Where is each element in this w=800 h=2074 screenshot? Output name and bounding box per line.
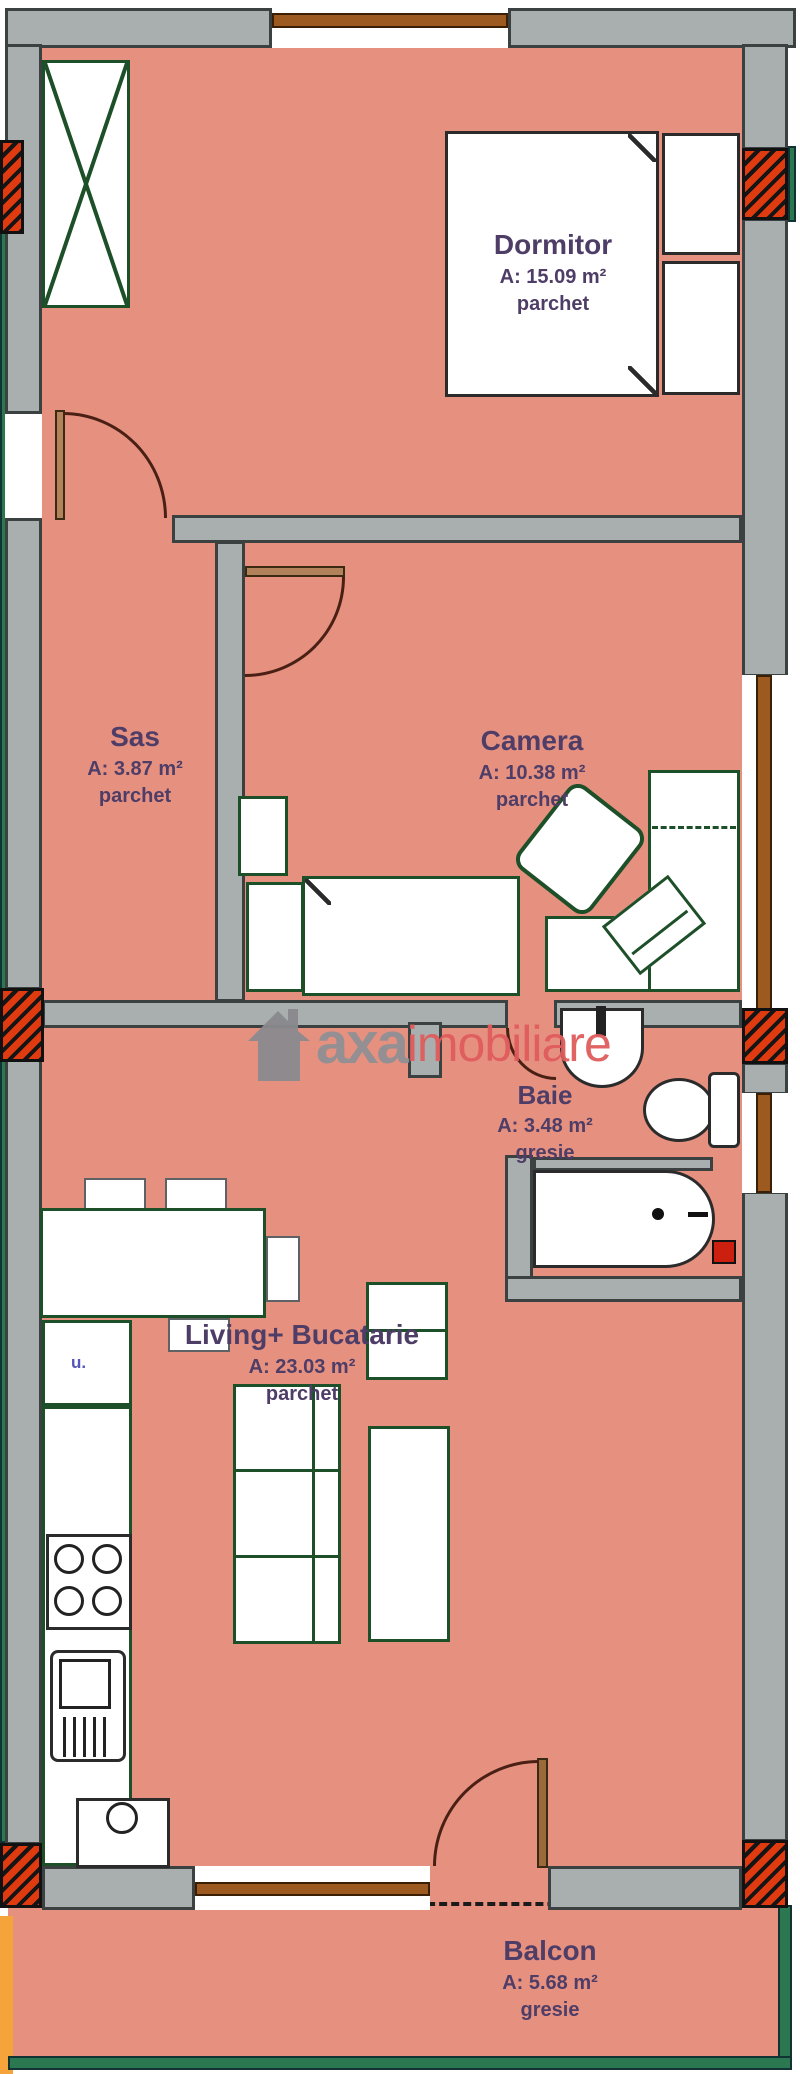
baie-valve: [712, 1240, 736, 1264]
dining-chair-right: [266, 1236, 300, 1302]
kitchen-sink-basin: [59, 1659, 111, 1709]
sofa: [233, 1384, 341, 1644]
wall-sas-camera-divider: [215, 541, 245, 1002]
hatch-left-bottom: [0, 1843, 42, 1908]
stove-burner-4: [92, 1586, 122, 1616]
wall-bottom-left: [42, 1866, 195, 1910]
dining-chair-top-1: [84, 1178, 146, 1212]
hatch-left-mid: [0, 988, 44, 1062]
window-top-frame: [272, 13, 508, 28]
hatch-right-top: [742, 148, 788, 220]
washing-machine-label: u.: [71, 1353, 86, 1373]
kitchen-sink-drain-lines: [63, 1717, 111, 1757]
camera-floor: parchet: [479, 787, 586, 814]
living-area: A: 23.03 m²: [185, 1354, 419, 1381]
dining-chair-top-2: [165, 1178, 227, 1212]
coffee-table: [368, 1426, 450, 1642]
window-baie-frame: [756, 1093, 772, 1193]
shaft-box: [42, 60, 130, 308]
stove-burner-3: [54, 1586, 84, 1616]
sas-floor: parchet: [87, 783, 183, 810]
wall-right-lower: [742, 1191, 788, 1842]
baie-bathtub-drain: [652, 1208, 664, 1220]
floor-plan: u. Dormitor A: 15.09 m² parchet Sas A: 3…: [0, 0, 800, 2074]
exterior-green-strip-right-top: [788, 146, 796, 222]
wall-left-lower: [5, 1058, 42, 1845]
window-top: [272, 8, 508, 48]
wall-bottom-right: [548, 1866, 742, 1910]
dormitor-name: Dormitor: [494, 226, 612, 264]
camera-door-leaf: [245, 566, 345, 577]
stove-burner-1: [54, 1544, 84, 1574]
label-camera: Camera A: 10.38 m² parchet: [479, 722, 586, 814]
camera-bed: [302, 876, 520, 996]
baie-floor: gresie: [497, 1140, 593, 1167]
baie-bathtub-tap: [688, 1212, 708, 1217]
dormitor-headboard-top: [662, 133, 740, 255]
label-sas: Sas A: 3.87 m² parchet: [87, 718, 183, 810]
window-bottom: [195, 1866, 430, 1910]
stove-burner-2: [92, 1544, 122, 1574]
hatch-left-top: [0, 140, 24, 234]
baie-toilet-bowl: [643, 1078, 715, 1142]
window-camera-frame: [756, 675, 772, 1010]
wall-left-middle: [5, 518, 42, 990]
entrance-opening: [5, 414, 42, 518]
dining-table: [40, 1208, 266, 1318]
watermark-brand: axa: [316, 1015, 407, 1073]
kitchen-sink-unit: [50, 1650, 126, 1762]
dormitor-bed-fold-bottom: [628, 366, 656, 394]
wall-tub-bottom: [505, 1276, 742, 1302]
wall-top-right: [508, 8, 796, 48]
watermark-brand-suffix: imobiliare: [407, 1019, 611, 1069]
watermark-house-icon: [244, 999, 314, 1089]
dormitor-area: A: 15.09 m²: [494, 264, 612, 291]
balcony-bottom-border: [8, 2056, 792, 2070]
sas-area: A: 3.87 m²: [87, 756, 183, 783]
balcony-right-border: [778, 1905, 792, 2068]
balcony-left-orange-edge: [0, 1916, 13, 2074]
window-camera-right: [742, 675, 788, 1010]
shaft-x-icon: [45, 63, 127, 305]
baie-area: A: 3.48 m²: [497, 1113, 593, 1140]
balcon-name: Balcon: [502, 1932, 598, 1970]
camera-pillow: [246, 882, 304, 992]
label-baie: Baie A: 3.48 m² gresie: [497, 1078, 593, 1167]
kitchen-counter: [42, 1406, 132, 1866]
camera-nightstand: [238, 796, 288, 876]
balcon-area: A: 5.68 m²: [502, 1970, 598, 1997]
label-dormitor: Dormitor A: 15.09 m² parchet: [494, 226, 612, 318]
hatch-right-mid: [742, 1008, 788, 1064]
living-floor: parchet: [185, 1381, 419, 1408]
balcon-floor: gresie: [502, 1997, 598, 2024]
label-balcon: Balcon A: 5.68 m² gresie: [502, 1932, 598, 2024]
wall-top-left: [5, 8, 272, 48]
dormitor-floor: parchet: [494, 291, 612, 318]
living-name: Living+ Bucatarie: [185, 1316, 419, 1354]
watermark: axaimobiliare: [244, 998, 611, 1090]
baie-toilet-tank: [708, 1072, 740, 1148]
wall-right-upper: [742, 218, 788, 677]
dormitor-headboard-bottom: [662, 261, 740, 395]
dormitor-bed-fold-top: [628, 134, 656, 162]
window-baie-right: [742, 1093, 788, 1193]
label-living: Living+ Bucatarie A: 23.03 m² parchet: [185, 1316, 419, 1408]
camera-name: Camera: [479, 722, 586, 760]
camera-desk-drawer-dash: [652, 826, 736, 829]
wall-dormitor-divider: [172, 515, 742, 543]
wall-right-mid: [742, 1062, 788, 1095]
wall-right-top: [742, 44, 788, 150]
balcony-floor: [8, 1908, 790, 2058]
camera-area: A: 10.38 m²: [479, 760, 586, 787]
washing-machine: u.: [42, 1320, 132, 1406]
camera-bed-fold: [305, 879, 331, 905]
hatch-right-bottom: [742, 1840, 788, 1908]
kitchen-boiler-knob: [106, 1802, 138, 1834]
sas-name: Sas: [87, 718, 183, 756]
baie-bathtub: [533, 1170, 715, 1268]
window-bottom-frame: [195, 1882, 430, 1896]
